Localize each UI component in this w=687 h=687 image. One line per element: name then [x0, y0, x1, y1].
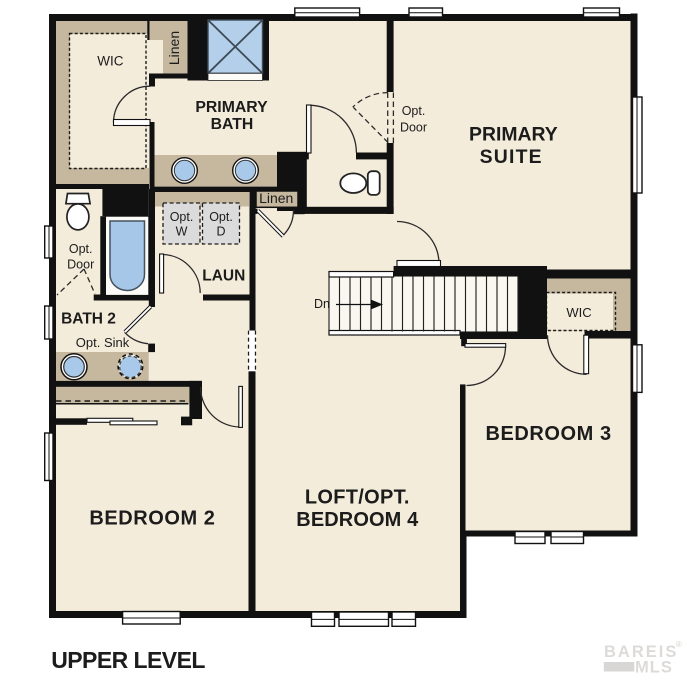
svg-text:Opt.: Opt.	[69, 242, 93, 256]
svg-text:WIC: WIC	[97, 53, 123, 68]
svg-text:Opt.: Opt.	[170, 210, 194, 224]
svg-text:BEDROOM 3: BEDROOM 3	[486, 423, 612, 445]
svg-text:D: D	[216, 225, 225, 239]
svg-text:LOFT/OPT.: LOFT/OPT.	[305, 486, 410, 508]
svg-text:W: W	[176, 225, 188, 239]
svg-text:Door: Door	[400, 121, 427, 135]
svg-text:Linen: Linen	[259, 190, 293, 206]
svg-text:Linen: Linen	[166, 31, 182, 65]
svg-text:BEDROOM 4: BEDROOM 4	[296, 509, 419, 531]
svg-text:LAUN: LAUN	[202, 268, 245, 285]
svg-text:BEDROOM 2: BEDROOM 2	[89, 507, 215, 529]
svg-text:Dn: Dn	[314, 297, 330, 311]
svg-text:MLS: MLS	[635, 659, 673, 677]
svg-text:WIC: WIC	[566, 305, 591, 320]
svg-text:Door: Door	[67, 258, 94, 272]
svg-text:BATH: BATH	[211, 116, 254, 133]
svg-text:UPPER LEVEL: UPPER LEVEL	[51, 647, 205, 673]
svg-text:SUITE: SUITE	[480, 146, 543, 168]
svg-text:PRIMARY: PRIMARY	[195, 99, 268, 116]
svg-text:PRIMARY: PRIMARY	[469, 123, 558, 145]
svg-text:®: ®	[676, 640, 682, 649]
svg-text:Opt.: Opt.	[209, 210, 233, 224]
svg-text:BATH 2: BATH 2	[61, 311, 116, 328]
svg-text:Opt. Sink: Opt. Sink	[76, 335, 130, 350]
svg-text:Opt.: Opt.	[402, 104, 426, 118]
